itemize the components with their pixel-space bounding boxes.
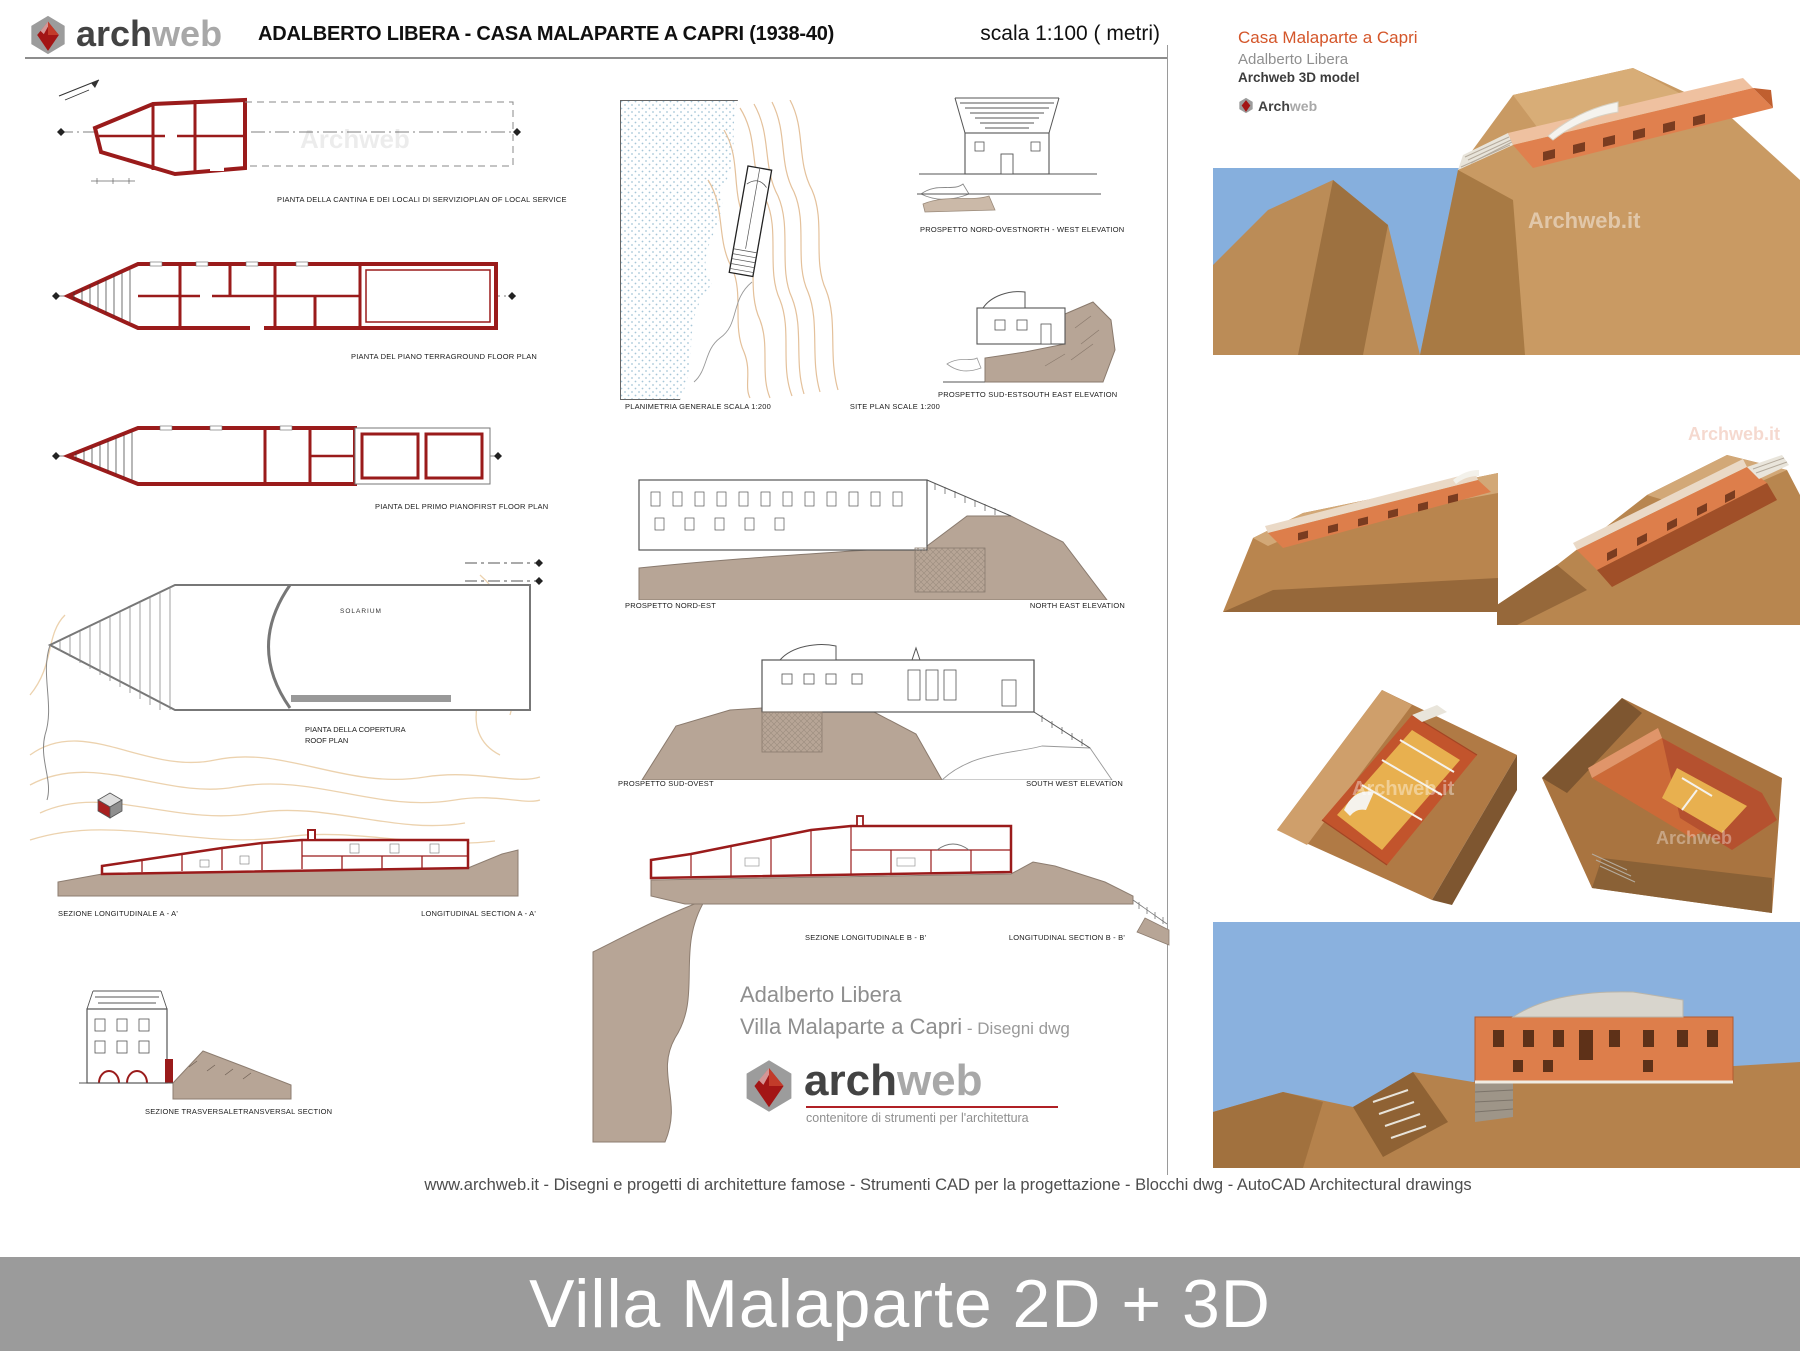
archweb-logo-text: archweb [76, 14, 222, 54]
site-plan-drawing [620, 100, 868, 400]
render-cutaway-right [1532, 658, 1800, 913]
roof-room-label: SOLARIUM [340, 608, 382, 615]
section-a-label: SEZIONE LONGITUDINALE A - A' LONGITUDINA… [58, 910, 536, 918]
credit-project-line: Villa Malaparte a Capri - Disegni dwg [740, 1014, 1070, 1040]
plan-cellar-drawing [55, 70, 525, 190]
elevation-ne-drawing [615, 450, 1135, 600]
render-side-view-left [1213, 418, 1498, 614]
plan-first-label-en: FIRST FLOOR PLAN [474, 503, 548, 511]
plan-cellar-label: PIANTA DELLA CANTINA E DEI LOCALI DI SER… [277, 196, 499, 204]
section-t-label-it: SEZIONE TRASVERSALE [145, 1108, 238, 1116]
elevation-ne-label: PROSPETTO NORD-EST NORTH EAST ELEVATION [625, 602, 1125, 610]
section-a-label-en: LONGITUDINAL SECTION A - A' [421, 910, 536, 918]
section-a-label-it: SEZIONE LONGITUDINALE A - A' [58, 910, 178, 918]
render-side-view-right [1497, 415, 1800, 625]
elevation-nw-label: PROSPETTO NORD-OVEST NORTH - WEST ELEVAT… [920, 226, 1100, 234]
section-b-label-it: SEZIONE LONGITUDINALE B - B' [805, 934, 926, 942]
plan-roof-label-it: PIANTA DELLA COPERTURA [305, 724, 406, 735]
brand-web: web [152, 13, 222, 54]
credit-brand-arch: arch [804, 1056, 897, 1105]
section-t-label-en: TRANSVERSAL SECTION [238, 1108, 332, 1116]
drawing-sheet: archweb ADALBERTO LIBERA - CASA MALAPART… [0, 0, 1800, 1351]
side-panel-title: Casa Malaparte a Capri [1238, 28, 1418, 48]
credit-logo: archweb contenitore di strumenti per l'a… [742, 1058, 1058, 1125]
plan-ground-label-en: GROUND FLOOR PLAN [451, 353, 537, 361]
banner-title: Villa Malaparte 2D + 3D [529, 1265, 1271, 1343]
section-a-drawing [50, 800, 550, 900]
footer-text: www.archweb.it - Disegni e progetti di a… [48, 1176, 1800, 1195]
site-plan-label: PLANIMETRIA GENERALE SCALA 1:200 SITE PL… [625, 403, 940, 411]
elevation-sw-label-en: SOUTH WEST ELEVATION [1026, 780, 1123, 788]
elevation-se-drawing [925, 268, 1120, 388]
render-hero-view [1213, 50, 1800, 355]
plan-roof-label: PIANTA DELLA COPERTURA ROOF PLAN [305, 724, 406, 747]
credit-tagline: contenitore di strumenti per l'architett… [806, 1111, 1058, 1125]
section-t-label: SEZIONE TRASVERSALE TRANSVERSAL SECTION [145, 1108, 298, 1116]
header-rule [25, 57, 1167, 59]
plan-first-label: PIANTA DEL PRIMO PIANO FIRST FLOOR PLAN [375, 503, 498, 511]
plan-cellar-label-en: PLAN OF LOCAL SERVICE [469, 196, 567, 204]
elevation-se-label-it: PROSPETTO SUD-EST [938, 391, 1023, 399]
elevation-sw-label-it: PROSPETTO SUD-OVEST [618, 780, 714, 788]
brand-arch: arch [76, 13, 152, 54]
elevation-nw-label-en: NORTH - WEST ELEVATION [1022, 226, 1124, 234]
page-title: ADALBERTO LIBERA - CASA MALAPARTE A CAPR… [258, 23, 834, 46]
section-t-drawing [65, 975, 305, 1110]
site-plan-label-it: PLANIMETRIA GENERALE SCALA 1:200 [625, 403, 771, 411]
credit-suffix: - Disegni dwg [962, 1019, 1070, 1038]
elevation-nw-label-it: PROSPETTO NORD-OVEST [920, 226, 1022, 234]
credit-logo-icon [742, 1058, 796, 1114]
section-b-label: SEZIONE LONGITUDINALE B - B' LONGITUDINA… [805, 934, 1125, 942]
render-front-view [1213, 922, 1800, 1168]
plan-first-drawing [50, 412, 520, 500]
elevation-se-label: PROSPETTO SUD-EST SOUTH EAST ELEVATION [938, 391, 1113, 399]
plan-ground-drawing [50, 238, 520, 353]
scale-note: scala 1:100 ( metri) [860, 22, 1160, 46]
elevation-se-label-en: SOUTH EAST ELEVATION [1023, 391, 1118, 399]
elevation-sw-label: PROSPETTO SUD-OVEST SOUTH WEST ELEVATION [618, 780, 1123, 788]
render-cutaway-left [1262, 660, 1532, 905]
site-plan-label-en: SITE PLAN SCALE 1:200 [850, 403, 940, 411]
plan-roof-label-en: ROOF PLAN [305, 735, 406, 746]
archweb-logo-icon [28, 14, 68, 56]
elevation-ne-label-it: PROSPETTO NORD-EST [625, 602, 716, 610]
plan-ground-label-it: PIANTA DEL PIANO TERRA [351, 353, 451, 361]
section-b-label-en: LONGITUDINAL SECTION B - B' [1009, 934, 1125, 942]
credit-logo-rule [806, 1106, 1058, 1108]
elevation-ne-label-en: NORTH EAST ELEVATION [1030, 602, 1125, 610]
plan-ground-label: PIANTA DEL PIANO TERRA GROUND FLOOR PLAN [351, 353, 493, 361]
credit-project: Villa Malaparte a Capri [740, 1014, 962, 1039]
bottom-banner: Villa Malaparte 2D + 3D [0, 1257, 1800, 1351]
credit-brand-web: web [897, 1056, 983, 1105]
plan-first-label-it: PIANTA DEL PRIMO PIANO [375, 503, 474, 511]
elevation-nw-drawing [905, 82, 1110, 222]
credit-architect: Adalberto Libera [740, 982, 901, 1008]
elevation-sw-drawing [612, 622, 1137, 780]
plan-cellar-label-it: PIANTA DELLA CANTINA E DEI LOCALI DI SER… [277, 196, 469, 204]
